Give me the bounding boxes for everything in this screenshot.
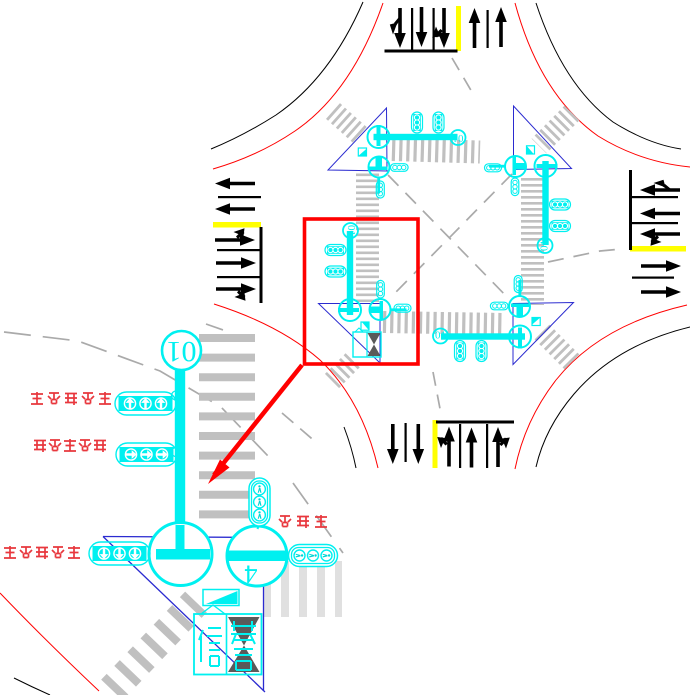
svg-text:01: 01 [167,335,197,368]
svg-text:4: 4 [245,560,258,589]
